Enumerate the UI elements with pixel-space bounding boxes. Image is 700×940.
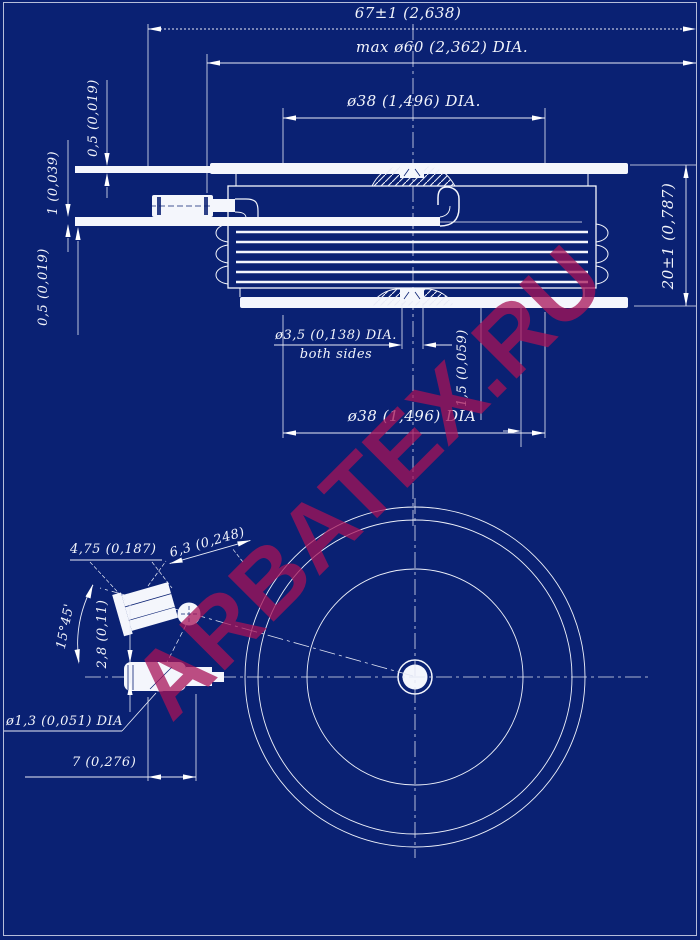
dim-terminal-hole-diameter: ø1,3 (0,051) DIA <box>4 693 156 731</box>
svg-text:1,5 (0,059): 1,5 (0,059) <box>455 329 470 407</box>
svg-text:7 (0,276): 7 (0,276) <box>72 755 136 770</box>
bellows-left <box>216 224 228 284</box>
dim-body-height: 20±1 (0,787) <box>630 165 696 306</box>
section-view: 67±1 (2,638) max ø60 (2,362) DIA. ø38 (1… <box>36 4 696 528</box>
svg-text:0,5 (0,019): 0,5 (0,019) <box>36 248 51 326</box>
svg-text:15°45': 15°45' <box>54 602 78 650</box>
dim-top-lead-thickness: 0,5 (0,019) <box>86 79 110 198</box>
svg-text:20±1 (0,787): 20±1 (0,787) <box>659 183 677 291</box>
drawing-canvas: 67±1 (2,638) max ø60 (2,362) DIA. ø38 (1… <box>0 0 700 940</box>
bottom-view: 4,75 (0,187) 6,3 (0,248) 15°45' <box>4 498 648 858</box>
terminal-hole <box>147 665 173 691</box>
svg-text:ø38 (1,496) DIA.: ø38 (1,496) DIA. <box>346 92 481 110</box>
gate-lead-assembly <box>75 187 459 226</box>
svg-text:6,3 (0,248): 6,3 (0,248) <box>168 525 247 561</box>
dim-top-pole-diameter: ø38 (1,496) DIA. <box>283 92 545 164</box>
gate-terminal-horizontal <box>124 662 224 691</box>
svg-text:both sides: both sides <box>300 347 372 362</box>
dim-terminal-span: 7 (0,276) <box>25 694 196 781</box>
dim-gate-hole: ø3,5 (0,138) DIA. both sides <box>274 303 452 362</box>
top-gate-pin <box>400 163 424 178</box>
svg-text:2,8 (0,11): 2,8 (0,11) <box>95 600 110 670</box>
bottom-gate-pin <box>400 288 424 301</box>
dim-overall-width: 67±1 (2,638) <box>148 4 696 168</box>
svg-text:ø1,3 (0,051) DIA: ø1,3 (0,051) DIA <box>5 714 123 729</box>
svg-text:ø3,5 (0,138) DIA.: ø3,5 (0,138) DIA. <box>274 328 397 343</box>
svg-text:max ø60 (2,362) DIA.: max ø60 (2,362) DIA. <box>356 38 528 56</box>
dim-gate-lead-thickness: 1 (0,039) <box>46 140 71 252</box>
technical-drawing: 67±1 (2,638) max ø60 (2,362) DIA. ø38 (1… <box>0 0 700 940</box>
bellows-right <box>596 224 608 284</box>
dim-recess-depth: 1,5 (0,059) <box>455 307 521 447</box>
device-body <box>210 163 628 308</box>
gate-terminal-slanted <box>112 579 200 666</box>
svg-text:1 (0,039): 1 (0,039) <box>46 151 61 215</box>
svg-text:67±1 (2,638): 67±1 (2,638) <box>355 4 462 22</box>
drawing-frame <box>4 3 697 936</box>
svg-text:0,5 (0,019): 0,5 (0,019) <box>86 79 101 157</box>
dim-terminal-angle: 15°45' <box>54 584 93 664</box>
svg-text:4,75 (0,187): 4,75 (0,187) <box>69 542 156 557</box>
housing-fins <box>236 232 588 282</box>
dim-bottom-lead-thickness: 0,5 (0,019) <box>36 227 81 335</box>
svg-text:ø38 (1,496) DIA: ø38 (1,496) DIA <box>347 407 477 425</box>
gate-lead-hook <box>438 187 459 226</box>
